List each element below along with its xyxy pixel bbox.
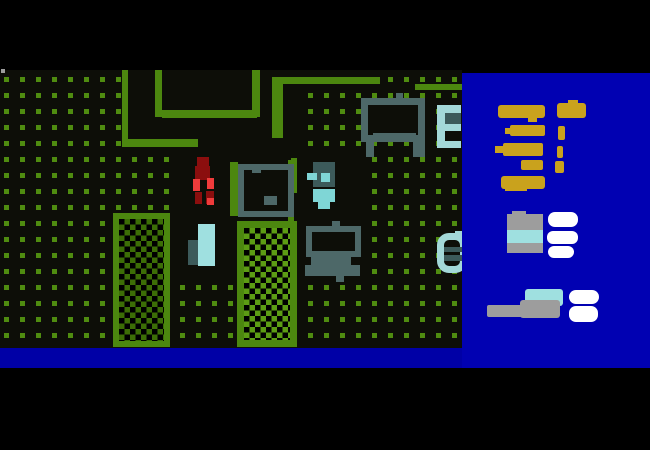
room-floor-a <box>122 70 297 147</box>
fridge-side <box>188 240 198 265</box>
ammo-pack-icon-1[interactable] <box>548 212 578 227</box>
computer-base <box>305 265 360 276</box>
computer-stand <box>336 276 344 282</box>
table-shelf <box>373 133 416 142</box>
table-knob <box>396 93 403 99</box>
wall-segment-4 <box>162 110 257 118</box>
player-foot <box>207 198 214 205</box>
game-screen <box>0 0 650 450</box>
computer-keyboard <box>311 257 351 265</box>
bunk-rail <box>437 105 445 148</box>
screen-artifact <box>1 69 5 73</box>
computer-antenna <box>332 221 340 227</box>
player-leg-left <box>195 192 202 204</box>
medkit-icon-lid[interactable] <box>512 211 526 215</box>
bed-notch <box>252 164 261 173</box>
table-leg-left <box>366 142 374 157</box>
bunk-arm-top <box>445 105 461 113</box>
bunk-gap <box>445 131 461 141</box>
garden-bed-2 <box>237 221 297 347</box>
gold-weapon-icon-2[interactable] <box>557 103 586 118</box>
player-arm-left <box>193 179 200 191</box>
wall-segment-5 <box>252 70 260 117</box>
garden-bed-1 <box>113 213 170 347</box>
gold-weapon-icon-4-tip[interactable] <box>495 146 505 153</box>
toilet-seat <box>318 202 330 209</box>
gold-clip-icon-3[interactable] <box>555 161 564 173</box>
gold-weapon-icon-2-sight[interactable] <box>568 100 578 105</box>
wall-segment-6 <box>272 77 283 138</box>
ammo-pack-icon-4[interactable] <box>569 290 599 304</box>
wall-segment-3 <box>155 70 162 117</box>
bed-rail-left <box>230 162 238 216</box>
bed-pillow <box>264 196 277 205</box>
ammo-pack-icon-2[interactable] <box>547 231 578 244</box>
chair-slat-1 <box>444 247 462 252</box>
gold-weapon-icon-1-grip[interactable] <box>528 117 537 122</box>
gold-clip-icon-1[interactable] <box>558 126 565 140</box>
ammo-pack-icon-3[interactable] <box>548 246 574 258</box>
player-arm-right <box>207 178 214 189</box>
bunk-mattress <box>445 113 461 124</box>
bunk-arm-bottom <box>445 141 461 148</box>
tool-icon-head[interactable] <box>520 300 560 318</box>
bed-frame <box>238 164 294 217</box>
wall-segment-1 <box>122 70 128 147</box>
gold-clip-icon-2[interactable] <box>557 146 563 158</box>
computer-screen <box>306 226 361 257</box>
wall-segment-8 <box>415 84 462 90</box>
medkit-icon-band[interactable] <box>507 230 543 243</box>
wall-segment-2 <box>128 139 198 147</box>
bunk-arm-mid <box>445 124 461 131</box>
inventory-panel <box>462 73 650 368</box>
gold-weapon-icon-4[interactable] <box>503 143 543 156</box>
table-leg-right <box>413 140 425 157</box>
toilet-bowl <box>313 189 335 202</box>
fridge-body <box>198 224 215 266</box>
ammo-pack-icon-5[interactable] <box>569 306 598 322</box>
gold-weapon-icon-3-tip[interactable] <box>505 128 512 134</box>
toilet-flush-right <box>321 173 330 182</box>
toilet-flush-left <box>307 173 317 180</box>
chair-stub <box>455 231 462 239</box>
gold-weapon-icon-3[interactable] <box>510 125 545 136</box>
wall-segment-7 <box>272 77 380 84</box>
gold-weapon-icon-1[interactable] <box>498 105 545 118</box>
chair-slat-2 <box>444 255 462 261</box>
gold-weapon-icon-5[interactable] <box>521 160 543 170</box>
gold-weapon-icon-6-grip[interactable] <box>505 187 527 191</box>
